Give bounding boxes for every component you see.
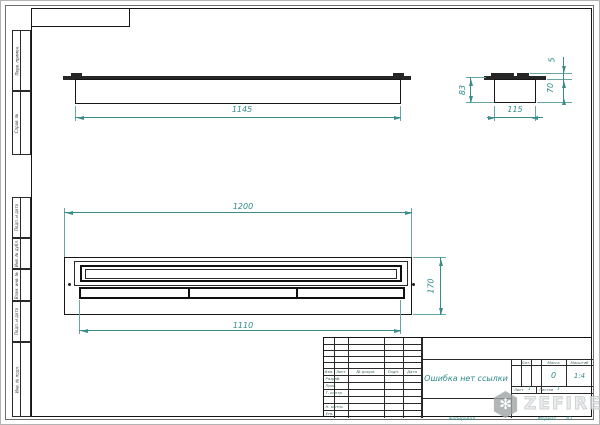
plan-slot-inner [85,269,397,279]
dim-arrow [394,116,403,120]
margin-cell-inv-podl: Инв. № подл. [12,342,31,417]
margin-label: Справ. № [13,92,21,154]
dim-arrow [562,96,566,105]
dim-label-5: 5 [545,52,561,68]
dim-arrow [405,211,414,215]
grid-line [324,350,421,351]
front-view-body [75,79,401,104]
dim-label-170: 170 [424,278,440,294]
dim-line-1145 [75,117,401,118]
margin-cell-vzam-inv: Взам. инв. № [12,269,31,301]
plan-screw-right [412,283,415,286]
margin-label: Инв. № дубл. [13,239,21,268]
side-view-tab-right [517,73,529,77]
margin-label: Подп. и дата [13,198,21,237]
dim-arrow [529,116,538,120]
front-view-tab-left [71,73,82,77]
extension-line [411,208,412,257]
plan-burner-bar [79,287,405,299]
dim-label-115: 115 [500,105,530,115]
row-label-nkontr: Н. контр. [326,404,344,410]
margin-cell-podp-data-2: Подп. и дата [12,301,31,342]
burner-bar-divider [296,289,298,297]
extension-line [530,73,572,74]
side-view-tab-left [491,73,514,77]
zefire-logo-icon: ✻ [492,391,519,418]
margin-label: Взам. инв. № [13,270,21,300]
row-label-utv: Утв. [326,411,334,417]
lit-label: Лит. [511,359,541,365]
col-label-izm: Изм. [324,368,334,375]
dim-arrow [562,66,566,75]
side-view-body [494,79,536,103]
dim-label-1145: 1145 [212,105,272,115]
drawing-sheet: Перв. примен. Справ. № Подп. и дата Инв.… [0,0,600,425]
zefire-watermark: ✻ ZEFIRE [488,388,600,422]
margin-cell-sprav: Справ. № [12,91,31,155]
grid-line [324,410,421,411]
dim-arrow [64,211,73,215]
extension-line [537,102,572,103]
dim-label-83: 83 [455,82,471,98]
col-label-podp: Подп. [384,368,403,375]
stamp-repeat-box [31,8,130,27]
grid-line [324,362,421,363]
dim-label-70: 70 [543,80,559,96]
zefire-brand-text: ZEFIRE [524,394,600,414]
row-label-prov: Пров. [326,383,337,389]
mass-value: 0 [541,365,566,386]
dim-line-1200 [64,212,412,213]
margin-cell-inv-dubl: Инв. № дубл. [12,238,31,269]
col-label-list: Лист [334,368,348,375]
front-view-tab-right [393,73,404,77]
grid-line [324,356,421,357]
col-label-data: Дата [403,368,421,375]
col-label-docnum: № докум. [348,368,384,375]
dim-arrow [562,79,566,88]
dim-arrow [394,329,403,333]
grid-line [324,396,421,397]
grid-line [324,344,421,345]
row-label-tkontr: Т. контр. [326,390,344,396]
margin-label: Инв. № подл. [13,343,21,416]
plan-screw-left [68,283,71,286]
margin-label: Подп. и дата [13,302,21,341]
row-label-razrab: Разраб. [326,376,341,382]
kopiroval-label: Копировал [437,417,487,423]
grid-line [324,382,421,383]
dim-label-1110: 1110 [213,321,273,331]
dim-arrow [75,116,84,120]
dim-label-1200: 1200 [213,202,273,212]
dim-arrow [439,257,443,266]
dim-arrow [79,329,88,333]
margin-cell-podp-data-1: Подп. и дата [12,197,31,238]
burner-bar-divider [188,289,190,297]
dim-arrow [488,116,497,120]
margin-cell-perv-primen: Перв. примен. [12,30,31,91]
scale-value: 1:4 [566,365,593,386]
margin-label: Перв. примен. [13,31,21,90]
extension-line [64,208,65,257]
dim-arrow [439,308,443,317]
